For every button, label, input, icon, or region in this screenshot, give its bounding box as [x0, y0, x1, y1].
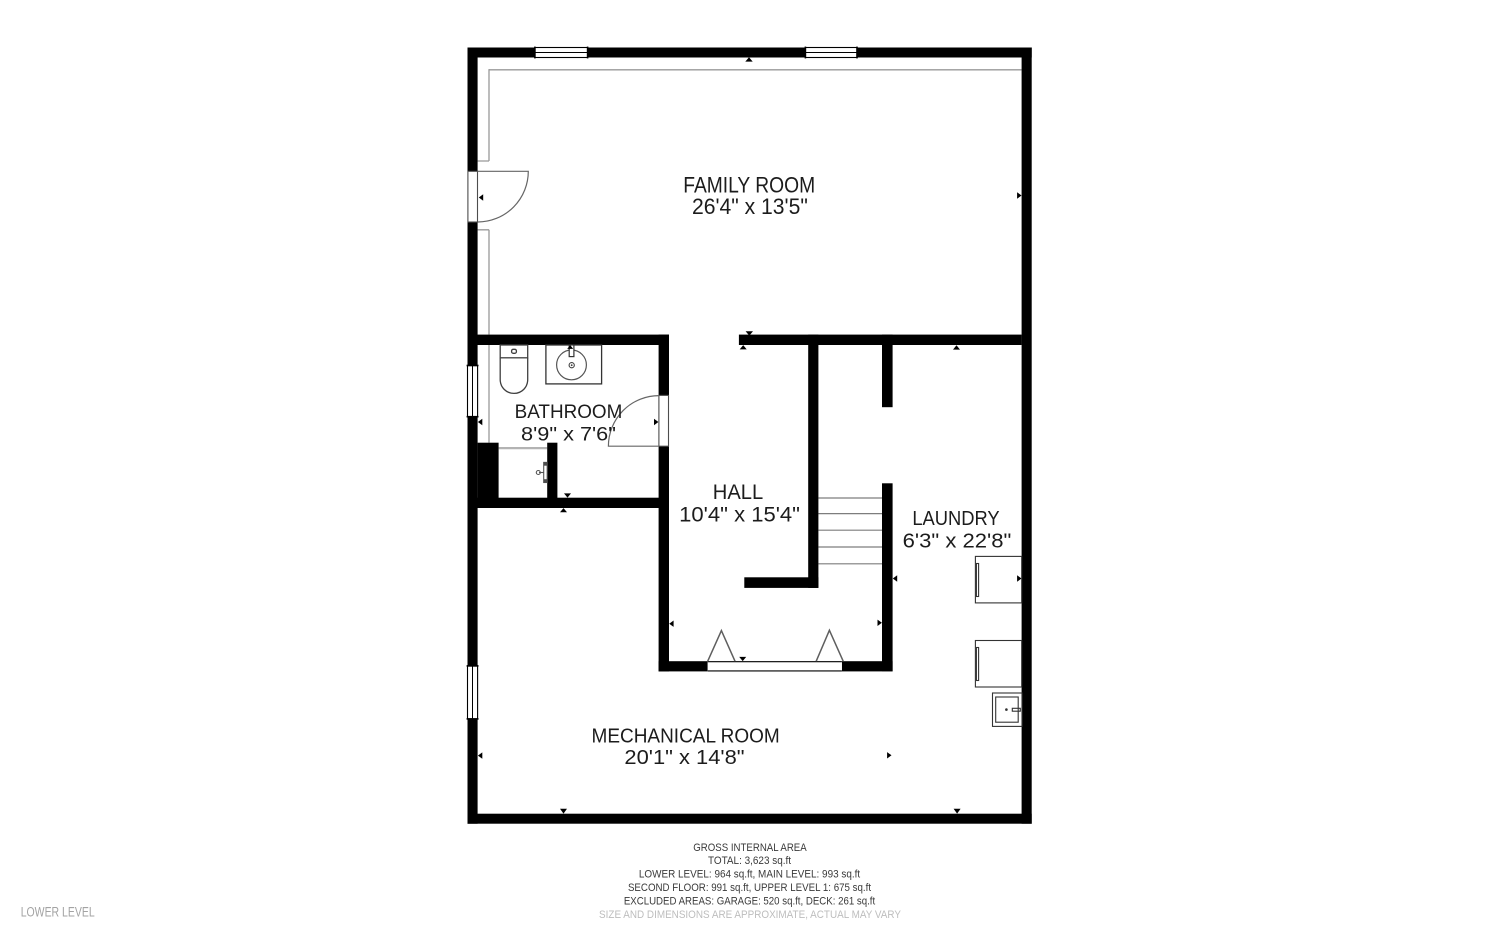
svg-text:TOTAL: 3,623 sq.ft: TOTAL: 3,623 sq.ft — [708, 855, 791, 867]
svg-text:LOWER LEVEL: 964 sq.ft, MAIN L: LOWER LEVEL: 964 sq.ft, MAIN LEVEL: 993 … — [639, 869, 860, 881]
svg-text:20'1" x 14'8": 20'1" x 14'8" — [624, 747, 744, 769]
svg-text:SIZE AND DIMENSIONS ARE APPROX: SIZE AND DIMENSIONS ARE APPROXIMATE, ACT… — [599, 909, 901, 921]
svg-text:MECHANICAL ROOM: MECHANICAL ROOM — [592, 726, 780, 748]
svg-text:6'3" x 22'8": 6'3" x 22'8" — [903, 531, 1012, 553]
svg-text:10'4" x 15'4": 10'4" x 15'4" — [679, 503, 800, 526]
svg-text:LAUNDRY: LAUNDRY — [912, 508, 999, 530]
svg-text:GROSS INTERNAL AREA: GROSS INTERNAL AREA — [693, 842, 807, 854]
svg-text:LOWER LEVEL: LOWER LEVEL — [21, 905, 95, 920]
svg-text:HALL: HALL — [713, 481, 763, 504]
svg-text:SECOND FLOOR: 991 sq.ft, UPPER: SECOND FLOOR: 991 sq.ft, UPPER LEVEL 1: … — [628, 882, 871, 894]
svg-text:BATHROOM: BATHROOM — [515, 402, 623, 423]
svg-text:26'4" x 13'5": 26'4" x 13'5" — [692, 194, 808, 219]
svg-text:EXCLUDED AREAS: GARAGE: 520 sq: EXCLUDED AREAS: GARAGE: 520 sq.ft, DECK:… — [624, 895, 875, 907]
svg-text:8'9" x 7'6": 8'9" x 7'6" — [521, 425, 616, 446]
